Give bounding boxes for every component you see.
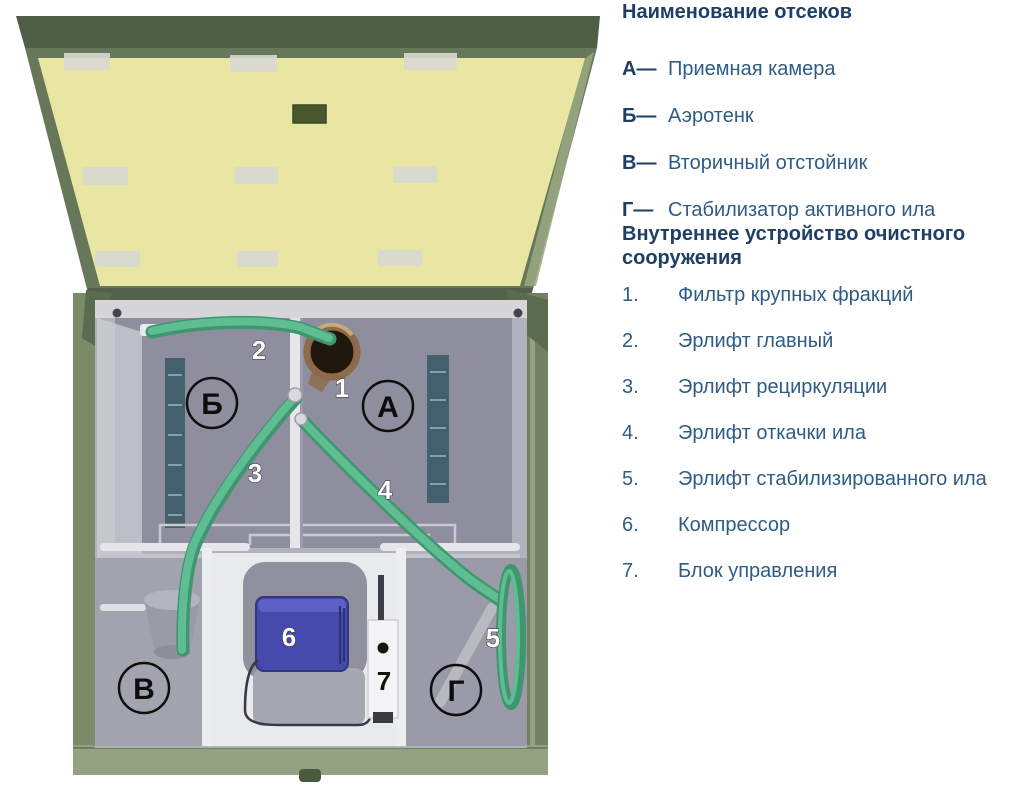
internal-name: Эрлифт откачки ила [678,421,866,445]
part-label-6: 6 [282,622,296,652]
legend-internal-row: 1. Фильтр крупных фракций [622,283,1014,307]
compartment-letter: В— [622,151,668,175]
compartment-letter: А— [622,57,668,81]
aerator-strip-right [427,355,449,503]
internal-number: 1. [622,283,678,307]
compartment-name: Вторичный отстойник [668,151,867,175]
internal-number: 4. [622,421,678,445]
internal-number: 6. [622,513,678,537]
control-unit-port [378,643,389,654]
part-label-5: 5 [486,623,500,653]
v-compartment-pipe [100,604,146,611]
part-label-4: 4 [378,475,393,505]
legend-compartment-row: Б— Аэротенк [622,104,1014,128]
compartment-name: Приемная камера [668,57,836,81]
internal-name: Эрлифт стабилизированного ила [678,467,987,491]
part-label-3: 3 [248,458,262,488]
control-unit-plug [373,712,393,723]
part-label-1: 1 [335,373,349,403]
tube3-fitting [288,388,302,402]
compartment-name: Аэротенк [668,104,754,128]
internal-name: Эрлифт главный [678,329,833,353]
internals-heading: Внутреннее устройство очистного сооружен… [622,222,1002,270]
compartment-g-label: Г [447,675,464,708]
internal-number: 2. [622,329,678,353]
legend-internal-row: 6. Компрессор [622,513,1014,537]
internal-number: 7. [622,559,678,583]
legend-internal-row: 5. Эрлифт стабилизированного ила [622,467,1014,491]
part-label-7: 7 [377,666,391,696]
legend-internal-row: 3. Эрлифт рециркуляции [622,375,1014,399]
legend-compartment-row: В— Вторичный отстойник [622,151,1014,175]
internal-name: Эрлифт рециркуляции [678,375,887,399]
screw-left [113,309,122,318]
internal-name: Компрессор [678,513,790,537]
control-unit-stem [378,575,384,620]
tank-shell-right-highlight [530,300,535,760]
interior-top-flange [95,300,527,318]
part-label-2: 2 [252,335,266,365]
internal-number: 3. [622,375,678,399]
compartment-name: Стабилизатор активного ила [668,198,935,222]
compartment-letter: Б— [622,104,668,128]
legend-panel: Наименование отсеков А— Приемная камера … [622,0,1014,583]
internal-number: 5. [622,467,678,491]
tube4-fitting [295,413,307,425]
compartments-heading: Наименование отсеков [622,0,1014,24]
tank-latch [299,769,321,782]
compressor-top [258,599,346,612]
legend-compartment-row: А— Приемная камера [622,57,1014,81]
compartment-b-label: Б [201,388,223,421]
legend-compartment-row: Г— Стабилизатор активного ила [622,198,1014,222]
divider-left [202,548,212,746]
treatment-unit-diagram: Б А В Г 1 2 3 4 5 6 7 [0,0,620,787]
lid-hinge-band [88,288,532,302]
internal-name: Фильтр крупных фракций [678,283,913,307]
tank-shell-left [73,293,95,775]
legend-internal-row: 4. Эрлифт откачки ила [622,421,1014,445]
lid-handle-hole [293,105,326,123]
lid-top-edge [16,16,600,48]
lid [16,16,600,302]
compartment-a-label: А [377,391,399,424]
page: Б А В Г 1 2 3 4 5 6 7 Наименование отсек… [0,0,1024,787]
central-divider [290,318,300,548]
internal-name: Блок управления [678,559,837,583]
aerator-strip-left [165,358,185,528]
legend-internal-row: 2. Эрлифт главный [622,329,1014,353]
screw-right [514,309,523,318]
central-divider-shadow [300,318,303,548]
compartment-v-label: В [133,673,155,706]
compressor-base [253,668,365,726]
compartment-letter: Г— [622,198,668,222]
legend-internal-row: 7. Блок управления [622,559,1014,583]
